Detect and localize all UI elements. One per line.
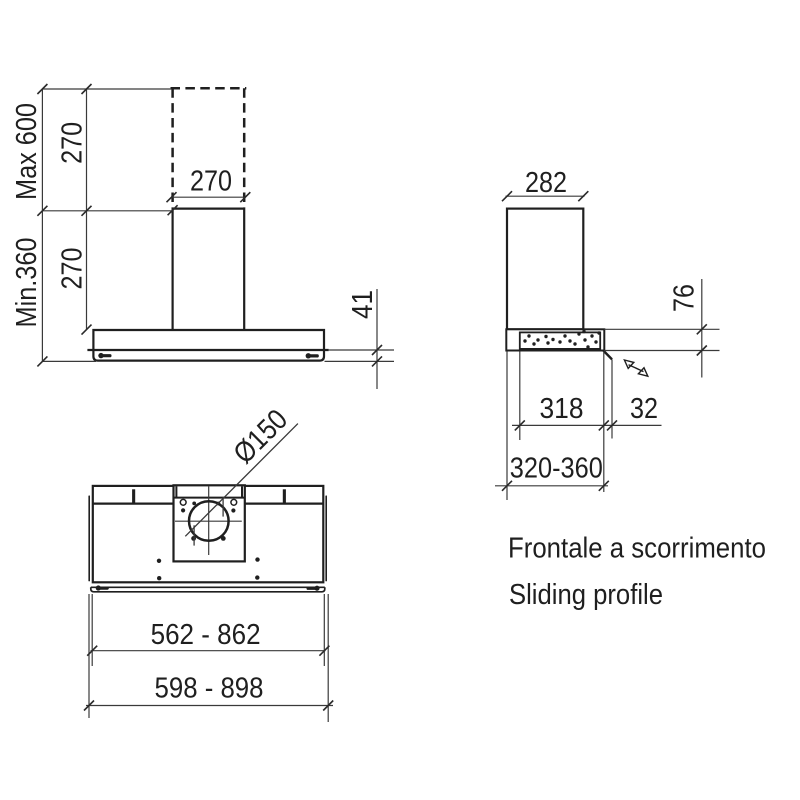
svg-text:282: 282 — [525, 167, 567, 199]
svg-text:76: 76 — [669, 284, 701, 312]
svg-text:41: 41 — [347, 290, 379, 319]
svg-text:Min.360: Min.360 — [11, 238, 43, 328]
svg-text:Frontale a scorrimento: Frontale a scorrimento — [508, 533, 766, 565]
svg-text:318: 318 — [540, 393, 584, 425]
svg-text:Max 600: Max 600 — [11, 103, 43, 200]
svg-text:320-360: 320-360 — [510, 452, 603, 484]
svg-text:598 - 898: 598 - 898 — [155, 673, 264, 705]
svg-text:Sliding profile: Sliding profile — [509, 579, 663, 611]
svg-text:270: 270 — [57, 248, 89, 290]
svg-text:32: 32 — [630, 393, 658, 425]
svg-text:562 - 862: 562 - 862 — [151, 619, 261, 651]
svg-text:270: 270 — [56, 122, 88, 164]
svg-text:270: 270 — [190, 166, 232, 198]
